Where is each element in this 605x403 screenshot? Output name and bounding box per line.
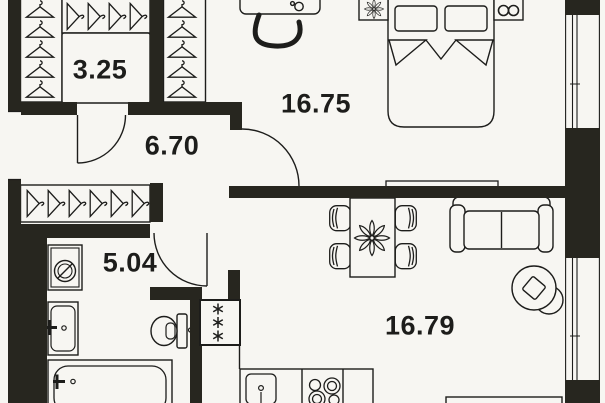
double-bed [388,0,494,127]
round-armchair [512,266,563,314]
pillow [395,6,437,31]
coat-rack [21,185,151,222]
window-upper [565,15,600,128]
sofa-arm [450,205,465,252]
room-label-hallway: 6.70 [145,131,200,162]
bedroom-wardrobe [164,0,206,102]
washing-machine [48,245,82,290]
ventilation-shaft [200,300,240,345]
toilet-tank [177,314,187,348]
desk-chair [255,15,300,46]
bedroom-door [242,129,299,186]
room-label-living-kitchen: 16.79 [385,311,455,342]
pillow [445,6,487,31]
kitchen-counter [240,369,373,403]
window-lower [565,258,600,380]
bathtub [48,360,172,403]
nightstand-right [494,0,523,20]
sofa-arm [538,205,553,252]
room-label-bedroom: 16.75 [281,89,351,120]
closet-wardrobe-left [21,0,63,102]
room-label-bathroom: 5.04 [103,248,158,279]
closet-door [78,115,126,163]
table-flower-icon [355,221,390,256]
desk [240,0,320,14]
sofa [450,197,553,252]
door-swing-arc [154,233,207,286]
island-counter [446,397,562,403]
nightstand-left [359,0,388,20]
room-label-closet: 3.25 [73,55,128,86]
door-swing-arc [242,129,299,186]
entrance-opening [8,111,21,180]
floor-plan: 3.25 6.70 16.75 5.04 16.79 [0,0,605,403]
bathroom-door [154,233,207,286]
toilet [151,314,193,348]
flower-icon [364,0,383,19]
door-swing-arc [78,115,126,163]
bathroom-sink [45,302,78,355]
closet-wardrobe-top [62,0,150,33]
